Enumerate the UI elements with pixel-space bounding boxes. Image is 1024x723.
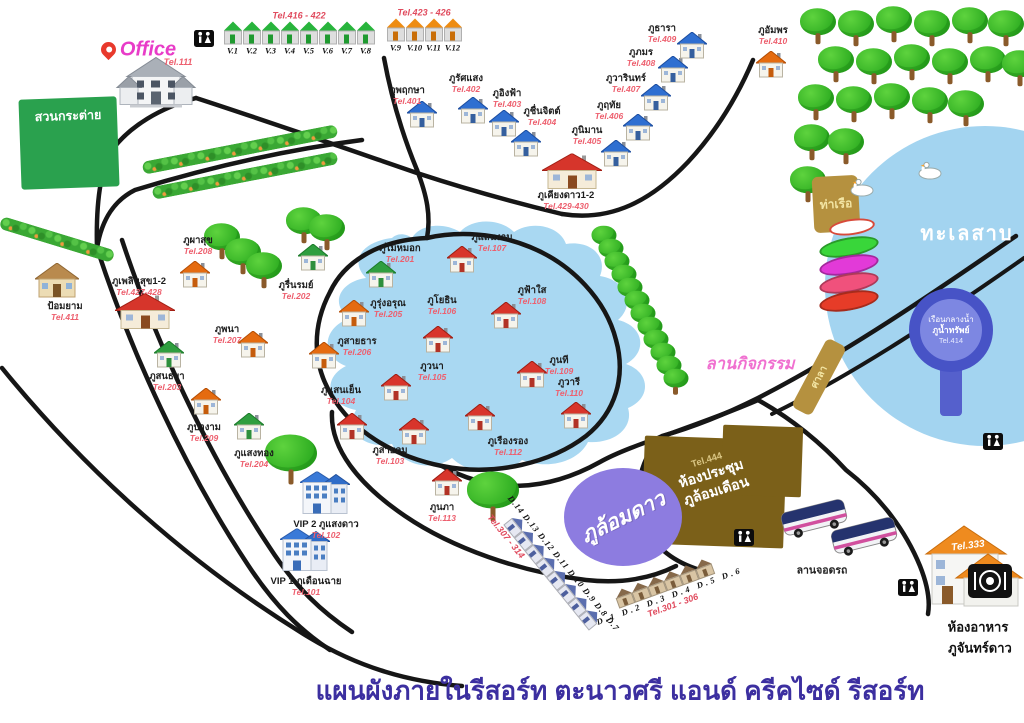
house-icon-Tel.410 <box>756 51 786 83</box>
villa-unit-V.12: V.12 <box>443 19 462 53</box>
house-label-Tel.110: ภูวารีTel.110 <box>555 378 583 398</box>
tree-icon <box>856 48 892 84</box>
house-label-Tel.429-430: ภูเคียงดาว1-2Tel.429-430 <box>538 191 595 211</box>
house-icon-Tel.205 <box>339 300 369 332</box>
tree-icon <box>818 46 854 82</box>
page-title: แผนผังภายในรีสอร์ท ตะนาวศรี แอนด์ ครีคไซ… <box>316 671 925 712</box>
resort-map: สวนกระต่าย Office Tel.111 Tel.416 - 422 … <box>0 0 1024 723</box>
villa-unit-V.4: V.4 <box>280 22 299 56</box>
house-icon-Tel.109 <box>517 361 547 393</box>
house-icon-Tel.105 <box>381 374 411 406</box>
house-label-Tel.407: ภูวารินทร์Tel.407 <box>606 74 646 94</box>
house-icon-Tel.429-430 <box>542 154 602 195</box>
house-label-Tel.104: ภูแสนเย็นTel.104 <box>321 386 361 406</box>
tree-icon <box>988 10 1024 46</box>
villa-unit-V.3: V.3 <box>261 22 280 56</box>
house-label-Tel.402: ภูรัศแสงTel.402 <box>449 74 483 94</box>
house-label-Tel.112: ภูเรืองรองTel.112 <box>488 437 528 457</box>
villa-unit-V.2: V.2 <box>242 22 261 56</box>
lake-label: ทะเลสาบ <box>920 217 1013 249</box>
house-icon-Tel.411 <box>35 263 79 303</box>
house-label-Tel.206: ภูสายธารTel.206 <box>337 337 376 357</box>
villa-unit-V.11: V.11 <box>424 19 443 53</box>
house-icon-Tel.209 <box>191 388 221 420</box>
house-icon-Tel.404 <box>511 130 541 162</box>
floating-house: เรือนกลางน้ำ ภูน้ำทรัพย์ Tel.414 <box>909 288 993 372</box>
house-label-Tel.208: ภูผาสุขTel.208 <box>183 236 212 256</box>
v-row-green-units: V.1 V.2 V.3 V.4 V.5 V.6 V.7 V.8 <box>223 22 375 56</box>
house-label-Tel.406: ภูฤทัยTel.406 <box>595 101 624 121</box>
tree-icon <box>798 84 834 120</box>
house-icon-Tel.104 <box>337 413 367 445</box>
house-label-Tel.202: ภูรื่นรมย์Tel.202 <box>279 281 314 301</box>
villa-unit-V.6: V.6 <box>318 22 337 56</box>
house-label-Tel.201: ภูไม้หมอกTel.201 <box>379 244 420 264</box>
house-icon-Tel.113 <box>432 469 462 501</box>
tree-icon <box>948 90 984 126</box>
house-icon-Tel.427-428 <box>115 294 175 335</box>
tree-icon <box>876 6 912 42</box>
house-icon-Tel.204 <box>234 413 264 445</box>
tree-icon <box>838 10 874 46</box>
house-icon-Tel.207 <box>238 331 268 363</box>
house-label-Tel.205: ภูรุ่งอรุณTel.205 <box>370 299 406 319</box>
phu-lom-dao-label: ภูล้อมดาว <box>575 482 671 551</box>
row-houses-v9-v12: Tel.423 - 426 V.9 V.10 V.11 V.12 <box>386 8 462 53</box>
restroom-icon <box>983 433 1003 455</box>
villa-unit-V.5: V.5 <box>299 22 318 56</box>
house-icon-Tel.208 <box>180 261 210 293</box>
restroom-icon <box>194 30 214 52</box>
floating-house-line2: ภูน้ำทรัพย์ <box>928 325 973 336</box>
v-row-green-tel: Tel.416 - 422 <box>272 11 325 21</box>
house-icon-Tel.202 <box>298 244 328 276</box>
house-icon-Tel.409 <box>677 32 707 64</box>
house-label-Tel.403: ภูอิงฟ้าTel.403 <box>493 89 522 109</box>
house-label-Tel.113: ภูนภาTel.113 <box>428 503 456 523</box>
tree-icon <box>894 44 930 80</box>
house-icon-Tel.108 <box>491 302 521 334</box>
house-label-Tel.209: ภูป่างามTel.209 <box>187 423 221 443</box>
house-icon-Tel.106 <box>423 326 453 358</box>
floating-house-line1: เรือนกลางน้ำ <box>928 315 973 325</box>
house-label-Tel.427-428: ภูเพลินสุข1-2Tel.427-428 <box>112 277 166 297</box>
house-label-Tel.102: VIP 2 ภูแสงดาวTel.102 <box>293 520 358 540</box>
rabbit-garden-label: สวนกระต่าย <box>19 104 118 127</box>
tree-icon <box>970 46 1006 82</box>
house-label-Tel.103: ภูสายลมTel.103 <box>372 446 407 466</box>
villa-unit-V.9: V.9 <box>386 19 405 53</box>
tree-icon <box>828 128 864 164</box>
house-label-Tel.109: ภูนทีTel.109 <box>545 356 574 376</box>
floating-house-tel: Tel.414 <box>928 336 973 345</box>
villa-unit-V.1: V.1 <box>223 22 242 56</box>
house-label-Tel.207: ภูพนาTel.207 <box>213 325 242 345</box>
house-label-Tel.108: ภูฟ้าใสTel.108 <box>518 286 547 306</box>
tree-icon <box>836 86 872 122</box>
house-label-Tel.404: ภูชื่นจิตต์Tel.404 <box>523 107 560 127</box>
activity-area-label: ลานกิจกรรม <box>706 351 795 377</box>
v-row-orange-units: V.9 V.10 V.11 V.12 <box>386 19 462 53</box>
house-label-Tel.203: ภูสนธยาTel.203 <box>149 372 184 392</box>
swan-boat-icon <box>917 162 943 185</box>
restaurant-label-line2: ภูจันทร์ดาว <box>948 638 1012 659</box>
house-icon-Tel.112 <box>465 404 495 436</box>
house-label-Tel.408: ภูภมรTel.408 <box>627 48 656 68</box>
tree-icon <box>794 124 830 160</box>
tree-icon <box>246 252 282 288</box>
tree-icon <box>663 369 688 395</box>
tree-icon <box>1002 50 1024 86</box>
row-houses-v1-v8: Tel.416 - 422 V.1 V.2 V.3 V.4 V.5 V.6 V.… <box>223 11 375 56</box>
swan-boat-icon <box>849 179 875 202</box>
house-label-Tel.411: ป้อมยามTel.411 <box>47 302 82 322</box>
house-icon-Tel.201 <box>366 261 396 293</box>
house-label-Tel.107: ภูแสนงามTel.107 <box>472 233 513 253</box>
house-icon-Tel.110 <box>561 402 591 434</box>
parking-label: ลานจอดรถ <box>797 562 848 579</box>
house-icon-Tel.406 <box>623 114 653 146</box>
restaurant-building <box>918 520 1024 621</box>
house-label-Tel.204: ภูแสงทองTel.204 <box>234 449 273 469</box>
villa-unit-V.10: V.10 <box>405 19 424 53</box>
restaurant-label-line1: ห้องอาหาร <box>948 617 1009 638</box>
tree-icon <box>952 7 988 43</box>
floating-house-walkway <box>940 366 962 416</box>
rabbit-garden-sign: สวนกระต่าย <box>18 96 119 189</box>
house-label-Tel.410: ภูอัมพรTel.410 <box>758 26 788 46</box>
house-label-Tel.405: ภูนิมานTel.405 <box>572 126 603 146</box>
villa-unit-V.7: V.7 <box>337 22 356 56</box>
tree-icon <box>914 10 950 46</box>
tree-icon <box>874 83 910 119</box>
house-icon-Tel.206 <box>309 342 339 374</box>
house-label-Tel.409: ภูธาราTel.409 <box>648 24 677 44</box>
phu-lom-dao-circle: ภูล้อมดาว <box>564 468 682 566</box>
tree-icon <box>800 8 836 44</box>
villa-unit-V.8: V.8 <box>356 22 375 56</box>
house-label-Tel.106: ภูโยธินTel.106 <box>427 296 456 316</box>
v-row-orange-tel: Tel.423 - 426 <box>397 8 450 18</box>
house-icon-Tel.203 <box>154 341 184 373</box>
restroom-icon <box>898 579 918 601</box>
tree-icon <box>912 87 948 123</box>
restroom-icon <box>734 529 754 551</box>
house-icon-Tel.402 <box>458 97 488 129</box>
office-tel: Tel.111 <box>164 57 193 67</box>
house-icon-Tel.102 <box>300 472 350 521</box>
house-label-Tel.101: VIP 1 ภูเดือนฉายTel.101 <box>271 577 342 597</box>
house-label-Tel.105: ภูวนาTel.105 <box>418 362 447 382</box>
house-label-Tel.401: ภูพฤกษาTel.401 <box>389 86 425 106</box>
tree-icon <box>932 48 968 84</box>
